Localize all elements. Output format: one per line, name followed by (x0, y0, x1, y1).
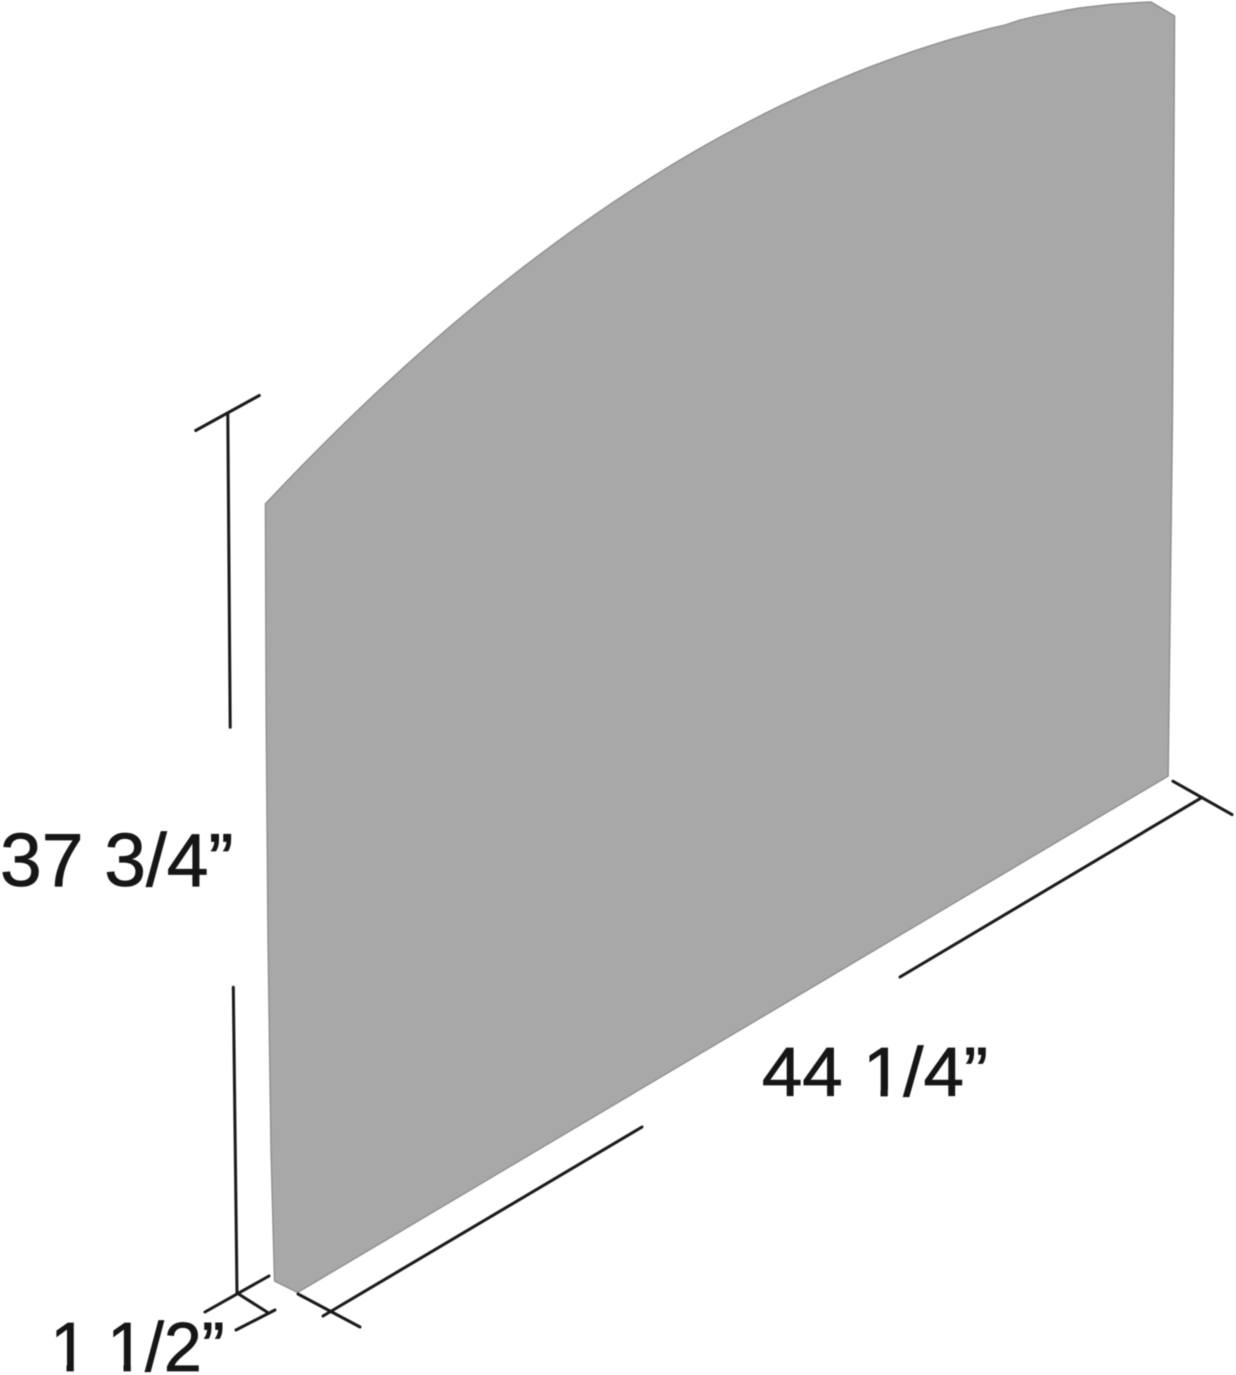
svg-text:44 1/4”: 44 1/4” (762, 1033, 988, 1111)
svg-text:37 3/4”: 37 3/4” (0, 818, 234, 902)
